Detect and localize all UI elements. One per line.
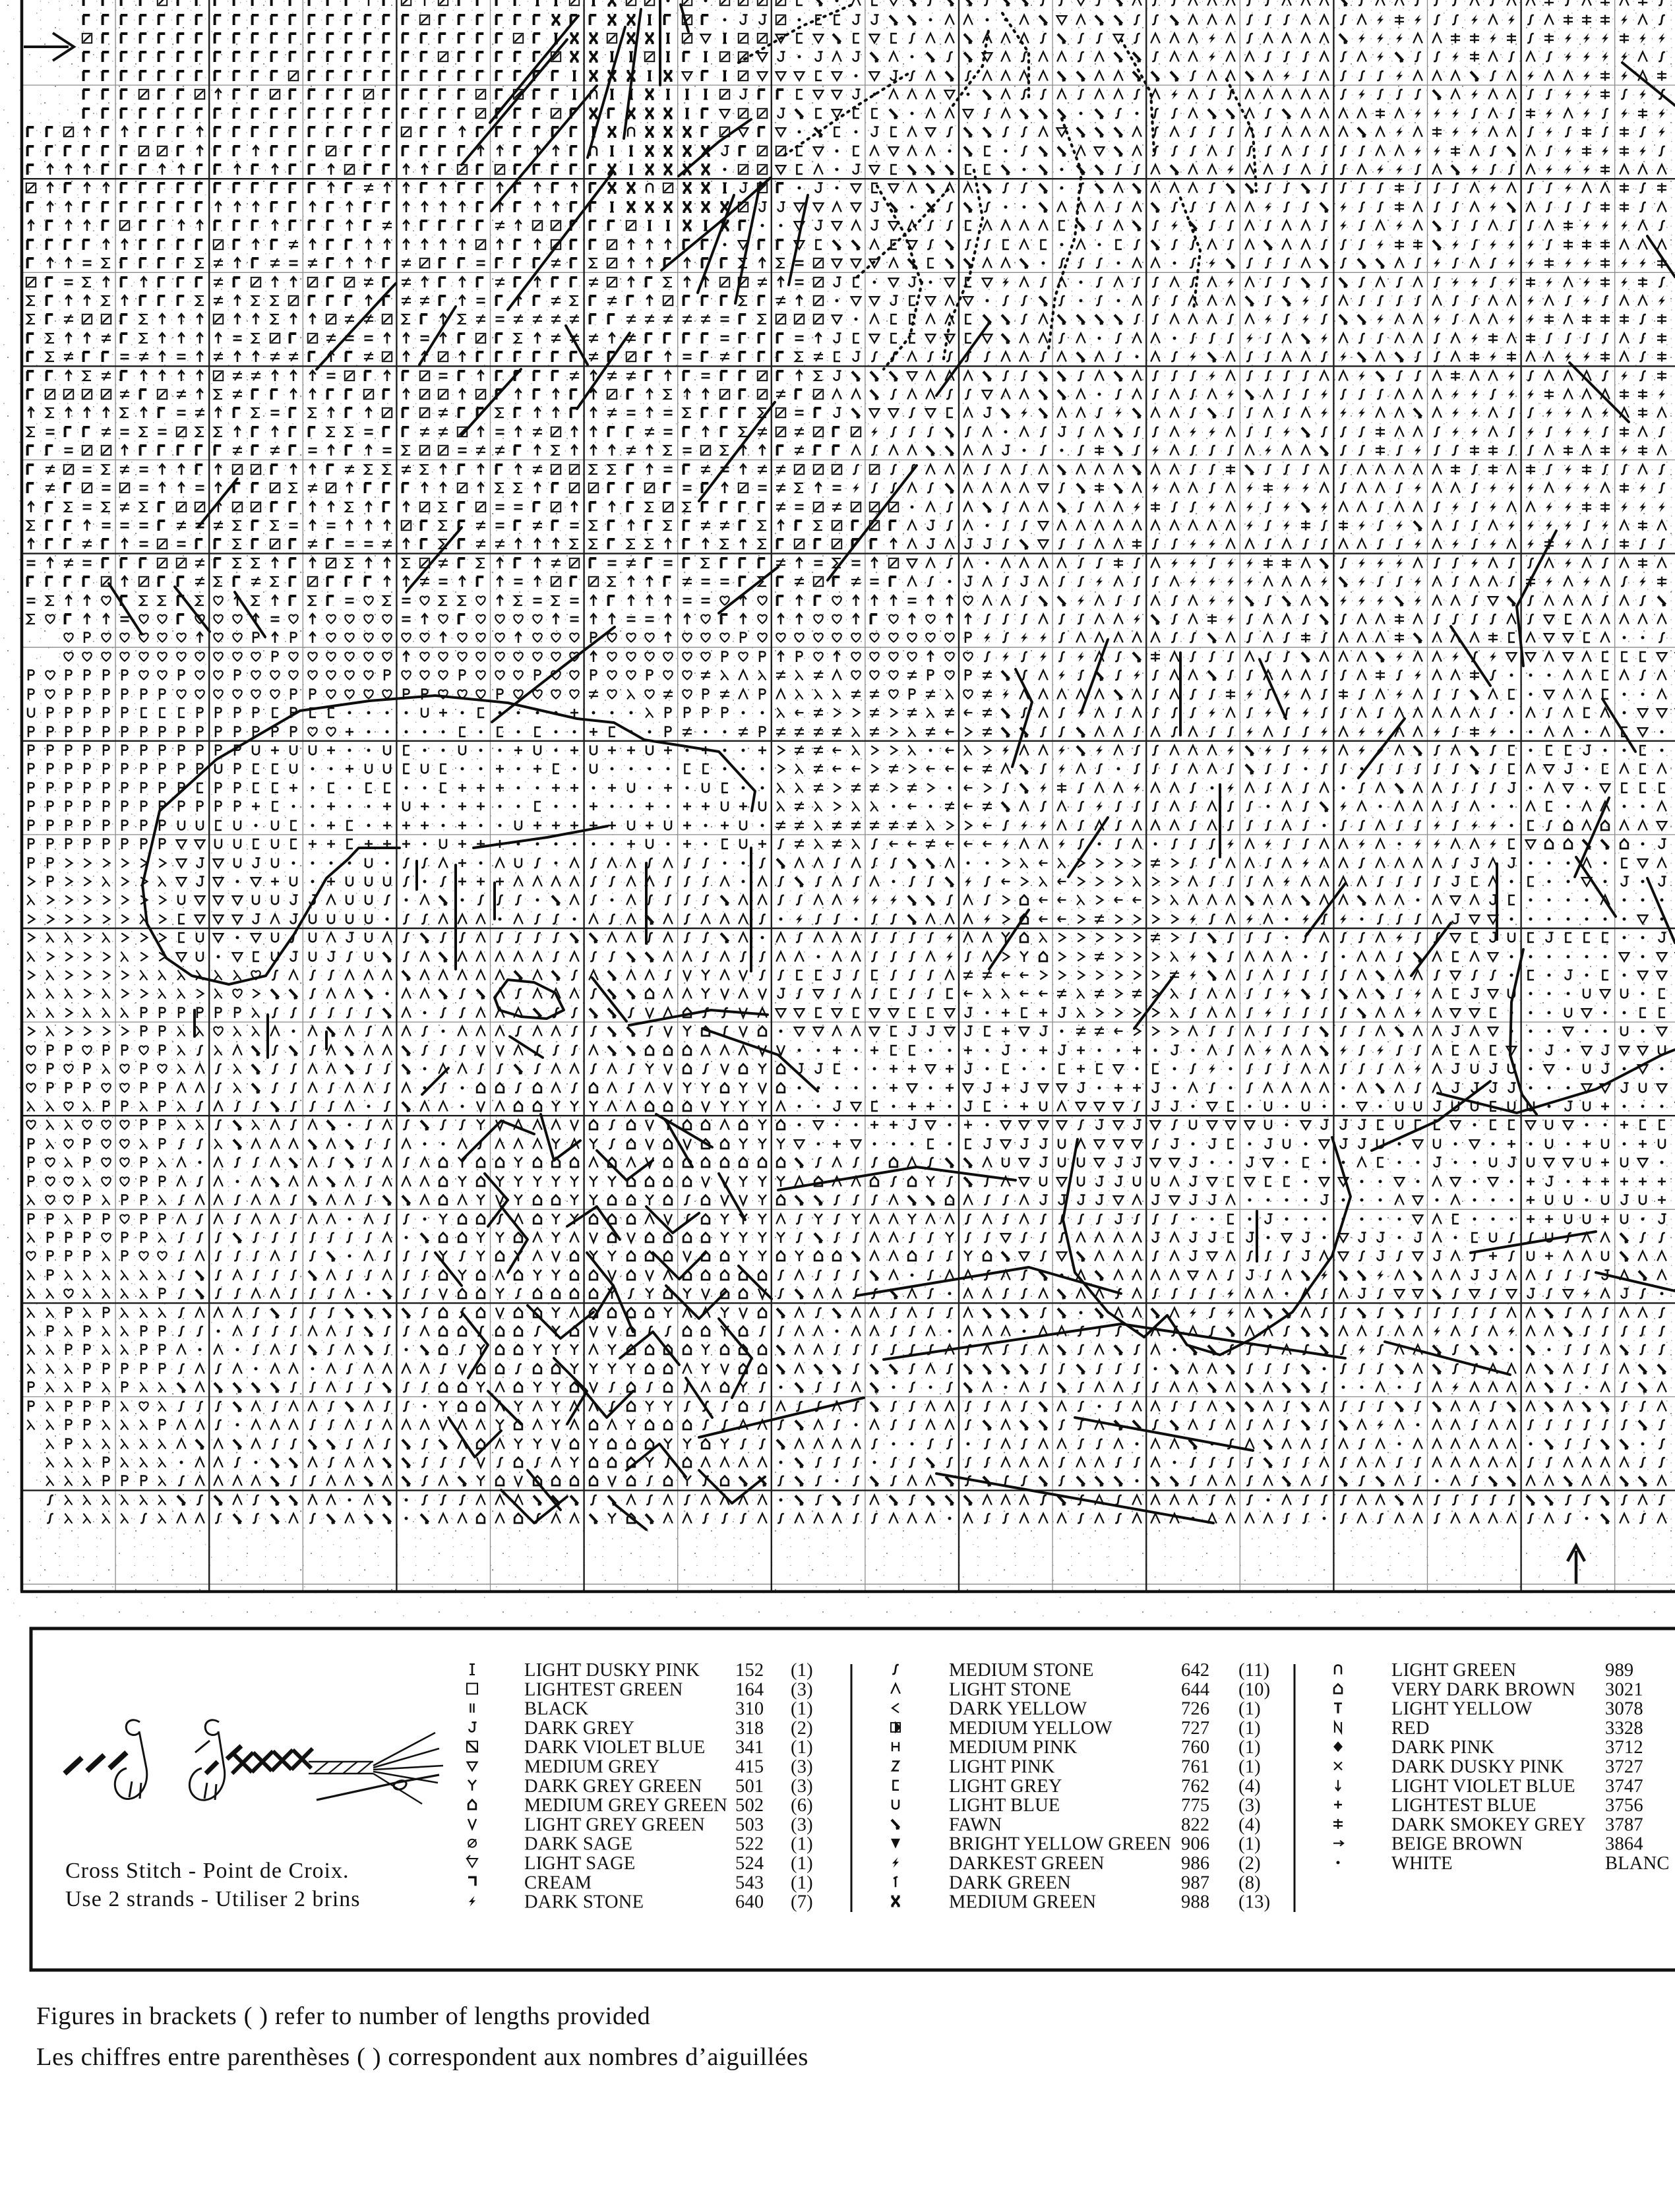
svg-text:3712: 3712 [1605, 1737, 1643, 1758]
svg-text:642: 642 [1181, 1660, 1209, 1681]
svg-text:MEDIUM PINK: MEDIUM PINK [949, 1737, 1078, 1758]
svg-text:DARK DUSKY PINK: DARK DUSKY PINK [1391, 1757, 1564, 1778]
svg-text:987: 987 [1181, 1872, 1209, 1893]
svg-text:DARK STONE: DARK STONE [524, 1892, 644, 1913]
svg-text:DARK GREY GREEN: DARK GREY GREEN [524, 1776, 702, 1797]
svg-text:(1): (1) [1238, 1699, 1261, 1719]
svg-text:Les chiffres entre parenthèses: Les chiffres entre parenthèses ( ) corre… [36, 2043, 808, 2071]
svg-text:(8): (8) [1238, 1872, 1261, 1893]
svg-text:BLANC: BLANC [1605, 1853, 1670, 1874]
svg-text:(1): (1) [791, 1737, 813, 1758]
svg-text:(1): (1) [791, 1660, 813, 1681]
svg-text:727: 727 [1181, 1718, 1209, 1739]
svg-text:Cross Stitch - Point de Croix.: Cross Stitch - Point de Croix. [65, 1859, 349, 1883]
svg-text:726: 726 [1181, 1699, 1209, 1719]
svg-text:WHITE: WHITE [1391, 1853, 1453, 1874]
svg-text:LIGHT BLUE: LIGHT BLUE [949, 1795, 1060, 1816]
svg-text:(3): (3) [791, 1679, 813, 1700]
svg-text:(1): (1) [1238, 1718, 1261, 1739]
svg-text:Use 2 strands - Utiliser 2 bri: Use 2 strands - Utiliser 2 brins [65, 1887, 361, 1911]
svg-text:DARKEST GREEN: DARKEST GREEN [949, 1853, 1105, 1874]
svg-text:BRIGHT YELLOW GREEN: BRIGHT YELLOW GREEN [949, 1834, 1171, 1855]
svg-text:503: 503 [735, 1814, 764, 1835]
svg-text:318: 318 [735, 1718, 764, 1739]
svg-text:989: 989 [1605, 1660, 1633, 1681]
svg-text:(2): (2) [791, 1718, 813, 1739]
svg-text:761: 761 [1181, 1757, 1209, 1778]
svg-text:DARK SMOKEY GREY: DARK SMOKEY GREY [1391, 1814, 1586, 1835]
svg-text:DARK YELLOW: DARK YELLOW [949, 1699, 1087, 1719]
svg-text:MEDIUM GREY GREEN: MEDIUM GREY GREEN [524, 1795, 727, 1816]
svg-text:644: 644 [1181, 1679, 1209, 1700]
svg-text:164: 164 [735, 1679, 764, 1700]
svg-text:640: 640 [735, 1892, 764, 1913]
svg-text:(6): (6) [791, 1795, 813, 1816]
svg-text:543: 543 [735, 1872, 764, 1893]
svg-text:(7): (7) [791, 1892, 813, 1913]
svg-text:DARK GREEN: DARK GREEN [949, 1872, 1071, 1893]
svg-text:3787: 3787 [1605, 1814, 1643, 1835]
svg-text:762: 762 [1181, 1776, 1209, 1797]
svg-text:3078: 3078 [1605, 1699, 1643, 1719]
svg-text:DARK GREY: DARK GREY [524, 1718, 634, 1739]
svg-text:(13): (13) [1238, 1892, 1270, 1913]
svg-text:LIGHT GREY GREEN: LIGHT GREY GREEN [524, 1814, 705, 1835]
svg-text:(4): (4) [1238, 1814, 1261, 1835]
svg-text:(1): (1) [791, 1872, 813, 1893]
svg-text:(4): (4) [1238, 1776, 1261, 1797]
svg-text:760: 760 [1181, 1737, 1209, 1758]
svg-text:3747: 3747 [1605, 1776, 1643, 1797]
svg-text:(2): (2) [1238, 1853, 1261, 1874]
svg-text:LIGHT YELLOW: LIGHT YELLOW [1391, 1699, 1533, 1719]
svg-text:MEDIUM YELLOW: MEDIUM YELLOW [949, 1718, 1112, 1739]
svg-text:DARK PINK: DARK PINK [1391, 1737, 1494, 1758]
svg-text:Figures in brackets ( ) refer: Figures in brackets ( ) refer to number … [36, 2002, 650, 2030]
svg-text:906: 906 [1181, 1834, 1209, 1855]
svg-text:415: 415 [735, 1757, 764, 1778]
svg-text:(3): (3) [1238, 1795, 1261, 1816]
svg-text:501: 501 [735, 1776, 764, 1797]
svg-text:MEDIUM STONE: MEDIUM STONE [949, 1660, 1094, 1681]
svg-text:341: 341 [735, 1737, 764, 1758]
svg-text:CREAM: CREAM [524, 1872, 592, 1893]
svg-text:(1): (1) [1238, 1757, 1261, 1778]
svg-text:LIGHT STONE: LIGHT STONE [949, 1679, 1072, 1700]
svg-text:RED: RED [1391, 1718, 1430, 1739]
svg-text:524: 524 [735, 1853, 764, 1874]
svg-text:BLACK: BLACK [524, 1699, 589, 1719]
svg-text:3727: 3727 [1605, 1757, 1643, 1778]
svg-text:(1): (1) [791, 1699, 813, 1719]
svg-text:LIGHTEST BLUE: LIGHTEST BLUE [1391, 1795, 1537, 1816]
svg-text:3864: 3864 [1605, 1834, 1643, 1855]
svg-text:LIGHT VIOLET BLUE: LIGHT VIOLET BLUE [1391, 1776, 1575, 1797]
svg-text:3328: 3328 [1605, 1718, 1643, 1739]
svg-text:DARK SAGE: DARK SAGE [524, 1834, 632, 1855]
svg-text:(10): (10) [1238, 1679, 1270, 1700]
svg-text:502: 502 [735, 1795, 764, 1816]
svg-text:775: 775 [1181, 1795, 1209, 1816]
svg-text:BEIGE BROWN: BEIGE BROWN [1391, 1834, 1523, 1855]
svg-text:(1): (1) [791, 1853, 813, 1874]
svg-text:MEDIUM GREY: MEDIUM GREY [524, 1757, 660, 1778]
svg-text:VERY DARK BROWN: VERY DARK BROWN [1391, 1679, 1575, 1700]
svg-text:152: 152 [735, 1660, 764, 1681]
svg-text:(3): (3) [791, 1757, 813, 1778]
svg-text:988: 988 [1181, 1892, 1209, 1913]
svg-text:(1): (1) [1238, 1737, 1261, 1758]
svg-text:FAWN: FAWN [949, 1814, 1002, 1835]
svg-text:MEDIUM GREEN: MEDIUM GREEN [949, 1892, 1096, 1913]
svg-text:LIGHT DUSKY PINK: LIGHT DUSKY PINK [524, 1660, 700, 1681]
svg-text:(11): (11) [1238, 1660, 1269, 1681]
svg-text:(3): (3) [791, 1776, 813, 1797]
svg-text:3021: 3021 [1605, 1679, 1643, 1700]
svg-text:LIGHTEST GREEN: LIGHTEST GREEN [524, 1679, 683, 1700]
svg-text:3756: 3756 [1605, 1795, 1643, 1816]
svg-text:986: 986 [1181, 1853, 1209, 1874]
svg-text:310: 310 [735, 1699, 764, 1719]
svg-text:(3): (3) [791, 1814, 813, 1835]
svg-text:LIGHT SAGE: LIGHT SAGE [524, 1853, 636, 1874]
svg-text:822: 822 [1181, 1814, 1209, 1835]
svg-text:(1): (1) [1238, 1834, 1261, 1855]
svg-text:(1): (1) [791, 1834, 813, 1855]
svg-text:LIGHT GREY: LIGHT GREY [949, 1776, 1062, 1797]
svg-text:LIGHT PINK: LIGHT PINK [949, 1757, 1055, 1778]
svg-text:LIGHT GREEN: LIGHT GREEN [1391, 1660, 1516, 1681]
svg-text:522: 522 [735, 1834, 764, 1855]
svg-text:DARK VIOLET BLUE: DARK VIOLET BLUE [524, 1737, 705, 1758]
